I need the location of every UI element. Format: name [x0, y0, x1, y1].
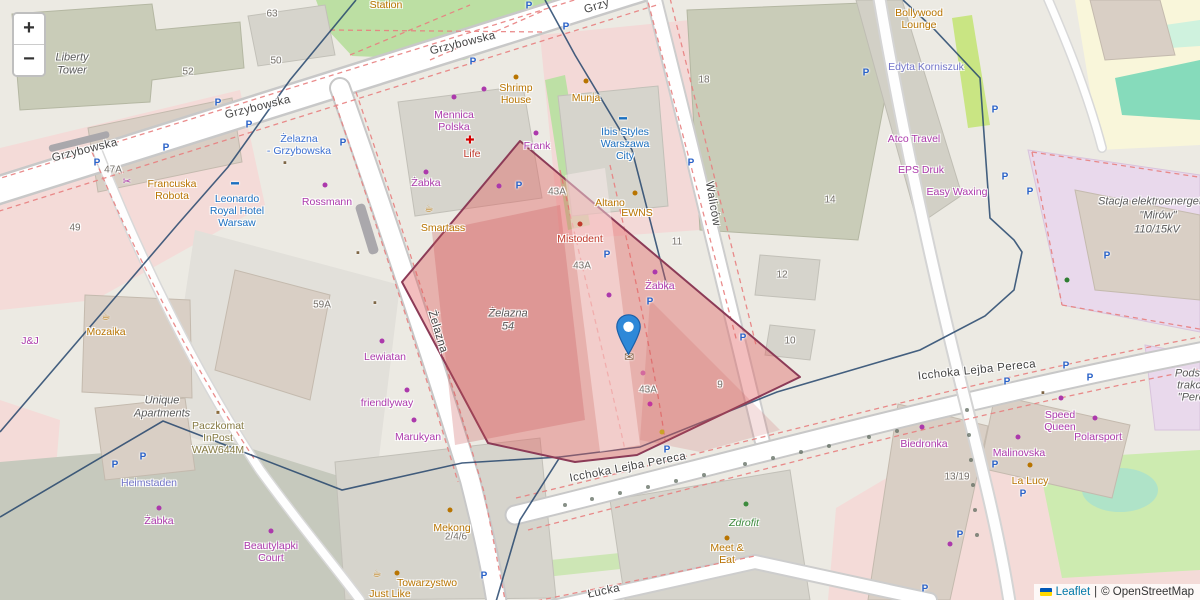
map-tiles — [0, 0, 1200, 600]
osm-attribution-link[interactable]: © OpenStreetMap — [1101, 586, 1194, 598]
location-marker-pin[interactable] — [616, 314, 641, 355]
zoom-control: + − — [12, 12, 46, 77]
building — [755, 255, 820, 300]
building — [248, 5, 335, 66]
building — [12, 4, 244, 110]
building — [687, 2, 892, 240]
ukraine-flag-icon — [1040, 588, 1052, 596]
zoom-out-button[interactable]: − — [14, 45, 44, 75]
map-canvas[interactable]: GrzybowskaGrzybowskaGrzybowskaGrzyŻelazn… — [0, 0, 1200, 600]
attribution-bar: Leaflet | © OpenStreetMap — [1034, 584, 1200, 600]
building — [82, 295, 192, 398]
attribution-divider: | — [1094, 586, 1097, 598]
zoom-in-button[interactable]: + — [14, 14, 44, 45]
building — [1090, 0, 1175, 60]
green-strip — [952, 15, 990, 128]
building — [95, 398, 195, 480]
building-in-highlight — [432, 205, 585, 445]
leaflet-link[interactable]: Leaflet — [1056, 586, 1091, 598]
